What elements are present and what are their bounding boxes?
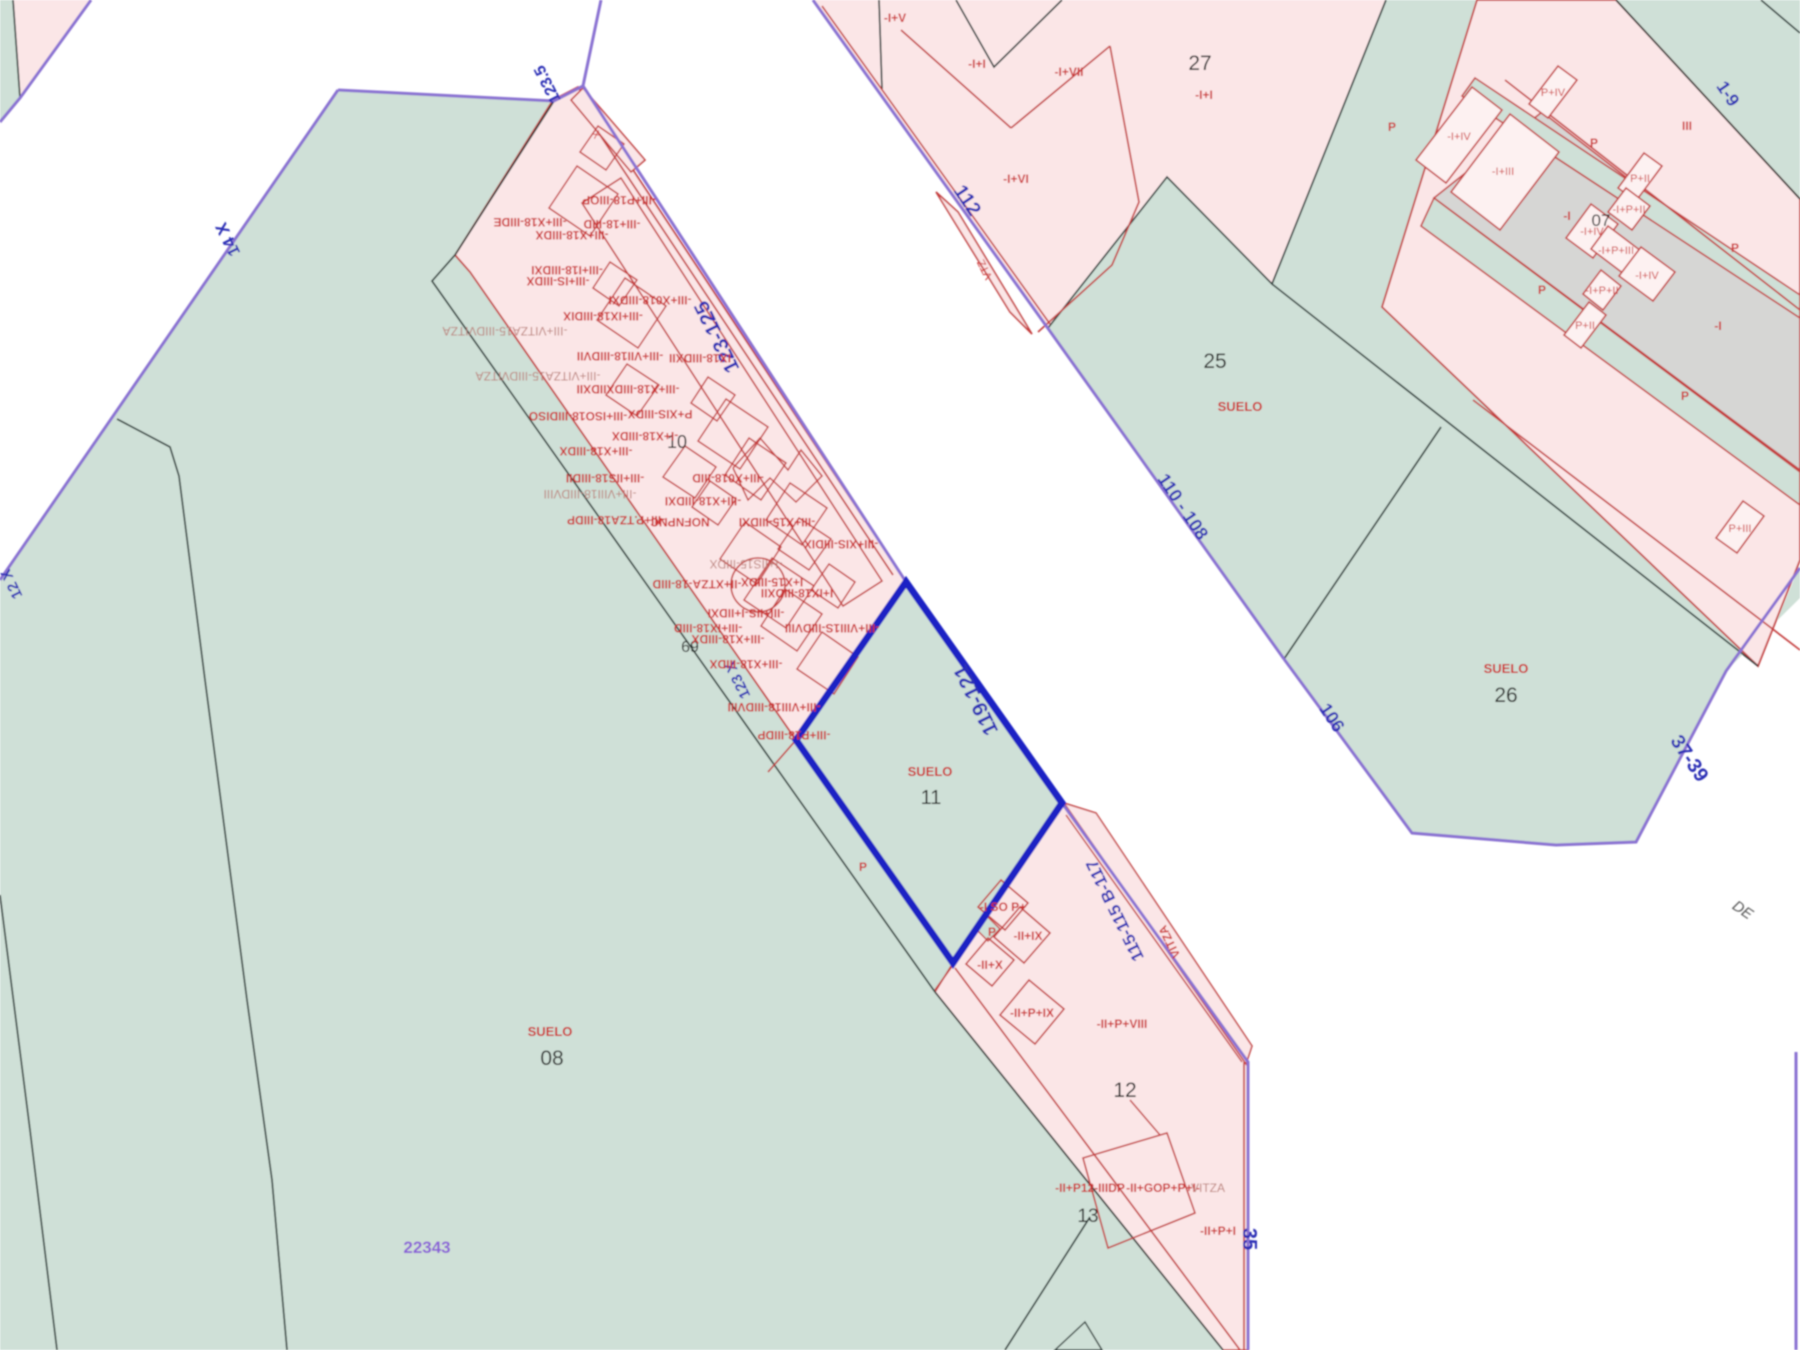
svg-text:-III+VITZA15-IIIDVITZA: -III+VITZA15-IIIDVITZA [475,369,600,383]
svg-text:-II+XTZA-18-IIID: -II+XTZA-18-IIID [652,577,741,591]
svg-text:26: 26 [1494,684,1517,707]
svg-text:-I+X18-IIIDX: -I+X18-IIIDX [612,429,678,443]
svg-text:P: P [1731,241,1739,255]
svg-text:-I+IIS15-IIIDX: -I+IIS15-IIIDX [709,557,782,571]
svg-text:-II+IX: -II+IX [1013,929,1042,943]
svg-text:-III+X18-IIIDX: -III+X18-IIIDX [709,657,782,671]
svg-text:-III+IS-IIIDX: -III+IS-IIIDX [526,274,589,288]
svg-text:P+II: P+II [1630,173,1650,185]
svg-text:-III+ISO18-IIIDISO: -III+ISO18-IIIDISO [529,409,627,423]
svg-text:25: 25 [1203,350,1226,373]
svg-text:P+II: P+II [1575,320,1595,332]
svg-text:-I: -I [1714,319,1721,333]
svg-text:VITZA: VITZA [1191,1181,1225,1195]
svg-text:-I SO P+: -I SO P+ [980,900,1026,914]
svg-text:-II+GOP+P+I-: -II+GOP+P+I- [1126,1181,1200,1195]
svg-text:P: P [1388,120,1396,134]
svg-text:35: 35 [1238,1228,1260,1250]
svg-text:-III+X18-IIIDX: -III+X18-IIIDX [559,444,632,458]
svg-text:-III+X18-IIIDX: -III+X18-IIIDX [691,632,764,646]
svg-text:-III+VIII1S-IIIDVIII: -III+VIII1S-IIIDVIII [785,621,879,635]
svg-text:-I+III: -I+III [1492,166,1514,178]
svg-text:-III+VIII18-IIIDVIII: -III+VIII18-IIIDVIII [543,487,636,501]
svg-text:-III+X18-IIIDXIIDXII: -III+X18-IIIDXIIDXII [576,382,679,396]
svg-text:-III+X018-IIIDXI: -III+X018-IIIDXI [608,293,691,307]
svg-text:13: 13 [1077,1206,1098,1227]
svg-text:-II+P12-IIIDP: -II+P12-IIIDP [1055,1181,1125,1195]
svg-text:-III+IIS18-IIIDII: -III+IIS18-IIIDII [566,471,644,485]
svg-text:-I+P+II: -I+P+II [1585,285,1618,297]
svg-text:P: P [1681,389,1689,403]
svg-text:I+IX18-IIIDXII: I+IX18-IIIDXII [761,586,833,600]
svg-text:-I: -I [1563,209,1570,223]
svg-text:-III+IX18-IIIDIX: -III+IX18-IIIDIX [563,309,643,323]
svg-text:-I+VII: -I+VII [1054,65,1083,79]
svg-text:-III+P18-IIIDP: -III+P18-IIIDP [757,728,830,742]
svg-text:-III+X15-IIIDXI: -III+X15-IIIDXI [739,515,815,529]
svg-text:27: 27 [1188,52,1211,75]
svg-text:P: P [859,860,867,874]
svg-text:-III+VIII18-IIIDVIII: -III+VIII18-IIIDVIII [727,700,820,714]
svg-text:-II+X: -II+X [977,958,1003,972]
svg-text:12: 12 [1113,1079,1136,1102]
svg-text:-III+VITZA15-IIIDVITZA: -III+VITZA15-IIIDVITZA [442,324,567,338]
svg-text:SUELO: SUELO [908,764,953,779]
svg-text:-III+VII18-IIIDVII: -III+VII18-IIIDVII [577,349,663,363]
svg-text:-III+P18-IIIOP: -III+P18-IIIOP [582,193,656,207]
svg-text:-I+P+II: -I+P+II [1612,204,1645,216]
svg-text:22343: 22343 [403,1238,450,1257]
svg-text:-I+VI: -I+VI [1003,172,1029,186]
svg-text:P+IV: P+IV [1541,87,1566,99]
svg-text:P: P [1538,283,1546,297]
svg-text:-I+I: -I+I [968,57,986,71]
svg-text:P: P [988,925,996,939]
svg-text:-II+P+VIII: -II+P+VIII [1097,1017,1148,1031]
svg-text:NOFNPNC: NOFNPNC [650,515,710,529]
svg-text:11: 11 [921,787,942,809]
svg-text:-I+P+III: -I+P+III [1598,245,1634,257]
svg-text:P: P [1590,136,1598,150]
svg-text:-III+X018-IIID: -III+X018-IIID [692,471,764,485]
svg-text:-I+V: -I+V [884,11,906,25]
svg-text:-III+IIS-I+IIDXI: -III+IIS-I+IIDXI [708,606,785,620]
svg-text:-I+IV: -I+IV [1635,270,1659,282]
svg-text:III: III [1682,119,1692,133]
svg-text:SUELO: SUELO [1218,399,1263,414]
svg-text:P+XIS-IIIDX: P+XIS-IIIDX [627,407,692,421]
svg-text:08: 08 [540,1047,563,1070]
svg-text:-II+P+I: -II+P+I [1200,1224,1236,1238]
svg-text:-III+X18-IIIDXI: -III+X18-IIIDXI [665,494,741,508]
svg-text:IX18-IIIDXII: IX18-IIIDXII [669,351,731,365]
svg-text:-I+I: -I+I [1195,88,1213,102]
svg-text:SUELO: SUELO [1484,661,1529,676]
svg-text:P+III: P+III [1729,523,1752,535]
svg-text:-III+X18-IIIDX: -III+X18-IIIDX [535,228,608,242]
svg-text:-III+XIS-IIIDIX: -III+XIS-IIIDIX [804,537,878,551]
svg-text:-I+IV: -I+IV [1580,226,1604,238]
svg-text:-I+IV: -I+IV [1447,131,1471,143]
svg-text:SUELO: SUELO [528,1024,573,1039]
svg-text:-II+P+IX: -II+P+IX [1010,1006,1054,1020]
svg-text:-III+X18-IIIDE: -III+X18-IIIDE [493,215,566,229]
